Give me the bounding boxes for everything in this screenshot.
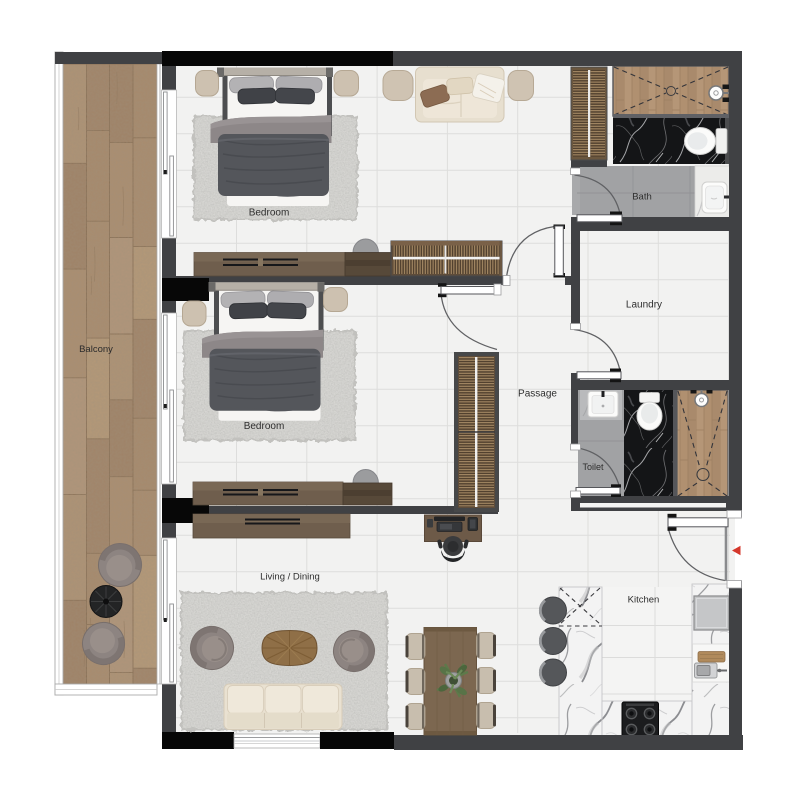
svg-text:Balcony: Balcony (79, 344, 113, 355)
svg-text:Bedroom: Bedroom (249, 208, 290, 219)
svg-text:Toilet: Toilet (582, 462, 604, 472)
svg-text:Kitchen: Kitchen (628, 595, 660, 606)
svg-text:Bath: Bath (632, 192, 652, 203)
svg-text:Passage: Passage (518, 389, 557, 400)
svg-text:Laundry: Laundry (626, 300, 662, 311)
svg-text:Living / Dining: Living / Dining (260, 572, 320, 583)
svg-text:Bedroom: Bedroom (244, 421, 285, 432)
